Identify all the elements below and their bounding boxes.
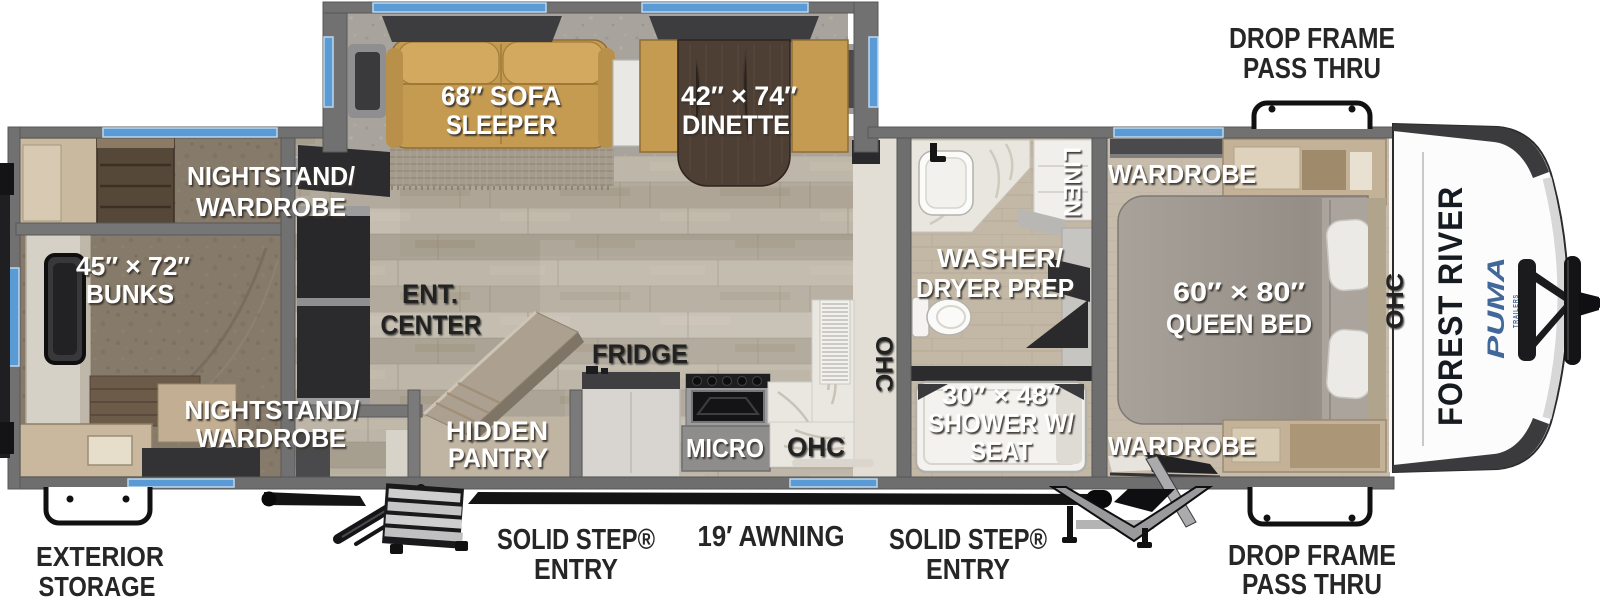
svg-text:ENT.: ENT. bbox=[402, 279, 458, 309]
svg-text:SLEEPER: SLEEPER bbox=[446, 110, 556, 140]
svg-text:DROP FRAME: DROP FRAME bbox=[1229, 23, 1395, 55]
svg-text:DINETTE: DINETTE bbox=[682, 110, 790, 140]
svg-text:ENTRY: ENTRY bbox=[534, 554, 618, 586]
svg-text:HIDDEN: HIDDEN bbox=[446, 416, 548, 446]
svg-text:42″ × 74″: 42″ × 74″ bbox=[681, 81, 797, 111]
svg-text:WARDROBE: WARDROBE bbox=[1108, 431, 1256, 461]
svg-text:SOLID STEP®: SOLID STEP® bbox=[497, 524, 655, 556]
svg-text:WARDROBE: WARDROBE bbox=[196, 192, 346, 222]
svg-text:LINEN: LINEN bbox=[1058, 147, 1085, 217]
svg-text:EXTERIOR: EXTERIOR bbox=[36, 541, 164, 572]
svg-text:SHOWER W/: SHOWER W/ bbox=[928, 408, 1074, 438]
svg-text:30″ × 48″: 30″ × 48″ bbox=[942, 380, 1060, 410]
svg-text:PASS THRU: PASS THRU bbox=[1243, 53, 1381, 85]
svg-text:FOREST RIVER: FOREST RIVER bbox=[1432, 186, 1470, 426]
svg-text:45″ × 72″: 45″ × 72″ bbox=[76, 251, 190, 281]
svg-text:WARDROBE: WARDROBE bbox=[1108, 159, 1256, 189]
svg-text:WARDROBE: WARDROBE bbox=[196, 423, 346, 453]
svg-text:SEAT: SEAT bbox=[970, 436, 1032, 466]
svg-text:QUEEN BED: QUEEN BED bbox=[1166, 309, 1312, 339]
svg-text:19′ AWNING: 19′ AWNING bbox=[698, 521, 845, 553]
svg-text:NIGHTSTAND/: NIGHTSTAND/ bbox=[185, 395, 360, 425]
svg-text:DRYER PREP: DRYER PREP bbox=[916, 273, 1074, 303]
svg-text:PASS THRU: PASS THRU bbox=[1242, 569, 1382, 601]
svg-text:60″ × 80″: 60″ × 80″ bbox=[1173, 277, 1305, 307]
svg-text:SOLID STEP®: SOLID STEP® bbox=[889, 524, 1047, 556]
svg-text:MICRO: MICRO bbox=[686, 433, 764, 463]
svg-text:CENTER: CENTER bbox=[381, 310, 482, 340]
svg-text:DROP FRAME: DROP FRAME bbox=[1228, 540, 1396, 572]
svg-text:OHC: OHC bbox=[787, 432, 845, 462]
svg-text:FRIDGE: FRIDGE bbox=[592, 339, 688, 369]
svg-text:OHC: OHC bbox=[870, 336, 897, 392]
svg-text:ENTRY: ENTRY bbox=[926, 554, 1010, 586]
svg-text:TRAILERS: TRAILERS bbox=[1513, 294, 1520, 328]
svg-text:STORAGE: STORAGE bbox=[39, 571, 156, 602]
svg-text:OHC: OHC bbox=[1382, 273, 1409, 329]
svg-text:PANTRY: PANTRY bbox=[448, 443, 548, 473]
svg-text:BUNKS: BUNKS bbox=[86, 279, 174, 309]
svg-text:WASHER/: WASHER/ bbox=[937, 243, 1063, 273]
svg-text:NIGHTSTAND/: NIGHTSTAND/ bbox=[187, 161, 355, 191]
svg-text:68″ SOFA: 68″ SOFA bbox=[441, 81, 561, 111]
svg-text:PUMA: PUMA bbox=[1483, 257, 1510, 359]
